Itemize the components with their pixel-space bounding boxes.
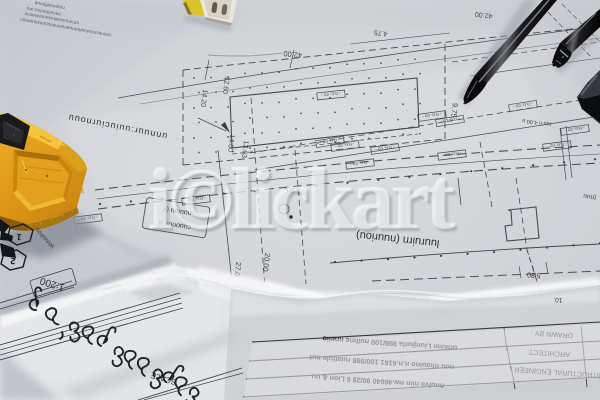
svg-text:9.75: 9.75 (449, 103, 460, 119)
svg-text:i©lickart: i©lickart (147, 151, 454, 248)
svg-text:10.: 10. (553, 296, 563, 304)
svg-text:5.80: 5.80 (527, 271, 541, 279)
